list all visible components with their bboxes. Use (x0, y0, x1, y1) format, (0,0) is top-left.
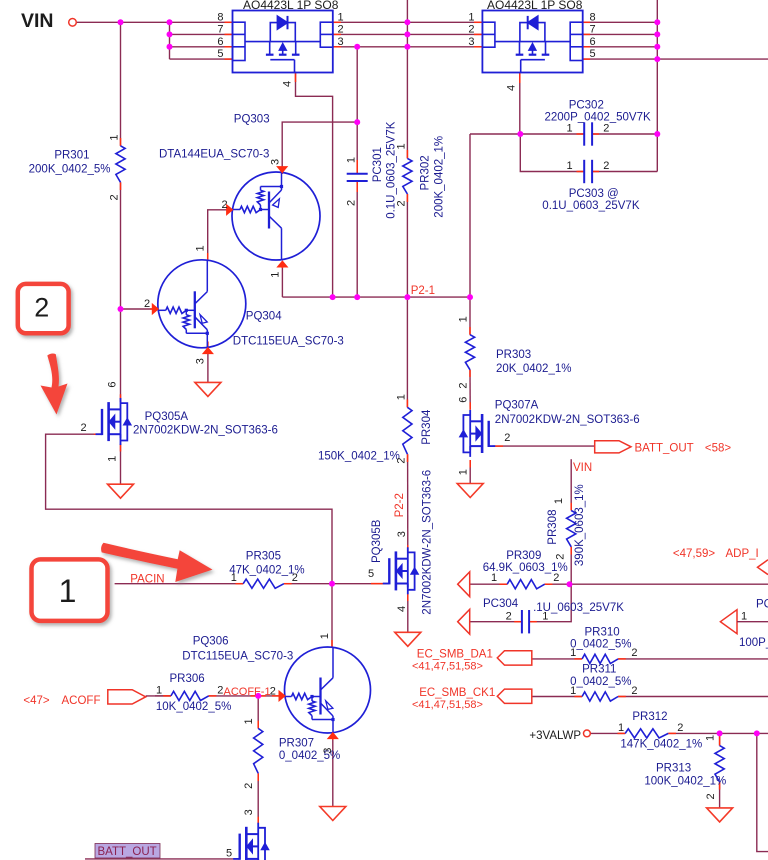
svg-text:PR310: PR310 (585, 627, 620, 639)
svg-text:BATT_OUT: BATT_OUT (635, 442, 694, 454)
svg-text:1: 1 (705, 735, 717, 741)
svg-text:1: 1 (59, 573, 77, 609)
svg-text:3: 3 (322, 748, 334, 754)
svg-text:1: 1 (618, 722, 624, 734)
svg-text:DTA144EUA_SC70-3: DTA144EUA_SC70-3 (159, 149, 269, 161)
svg-text:PQ306: PQ306 (193, 636, 229, 648)
svg-text:1: 1 (231, 572, 237, 584)
svg-text:PR308: PR308 (547, 510, 559, 545)
svg-text:200K_0402_5%: 200K_0402_5% (29, 164, 111, 176)
svg-text:6: 6 (458, 397, 470, 403)
svg-text:DTC115EUA_SC70-3: DTC115EUA_SC70-3 (182, 651, 293, 663)
svg-text:2: 2 (144, 298, 150, 310)
svg-text:2200P_0402_50V7K: 2200P_0402_50V7K (545, 112, 651, 124)
svg-text:1: 1 (109, 134, 121, 140)
svg-text:150K_0402_1%: 150K_0402_1% (318, 451, 400, 463)
svg-text:8: 8 (590, 11, 596, 23)
svg-text:ADP_I: ADP_I (726, 548, 759, 560)
svg-text:2: 2 (109, 194, 121, 200)
svg-text:1: 1 (156, 684, 162, 696)
svg-text:<58>: <58> (705, 442, 732, 454)
svg-text:1: 1 (270, 272, 282, 278)
svg-text:6: 6 (107, 381, 119, 387)
svg-text:2N7002KDW-2N_SOT363-6: 2N7002KDW-2N_SOT363-6 (422, 470, 434, 615)
svg-text:P2-1: P2-1 (411, 285, 435, 297)
svg-text:2: 2 (468, 24, 474, 36)
svg-text:5: 5 (217, 48, 223, 60)
svg-text:1: 1 (319, 633, 331, 639)
svg-text:2: 2 (346, 200, 358, 206)
svg-text:1: 1 (346, 157, 358, 163)
svg-text:2: 2 (222, 199, 228, 211)
svg-text:ACOFF-1: ACOFF-1 (224, 686, 271, 698)
svg-text:ACOFF: ACOFF (62, 695, 101, 707)
svg-text:4: 4 (506, 85, 518, 91)
svg-text:PR303: PR303 (496, 349, 531, 361)
svg-text:3: 3 (338, 36, 344, 48)
svg-text:2N7002KDW-2N_SOT363-6: 2N7002KDW-2N_SOT363-6 (495, 414, 640, 426)
svg-text:2: 2 (396, 457, 408, 463)
svg-text:3: 3 (396, 531, 408, 537)
svg-text:EC_SMB_DA1: EC_SMB_DA1 (417, 648, 493, 660)
svg-text:1: 1 (567, 122, 573, 134)
svg-text:1: 1 (396, 143, 408, 149)
svg-text:1: 1 (491, 572, 497, 584)
svg-text:EC_SMB_CK1: EC_SMB_CK1 (419, 687, 495, 699)
svg-text:1: 1 (458, 469, 470, 475)
svg-text:2: 2 (677, 722, 683, 734)
svg-text:4: 4 (396, 606, 408, 612)
svg-text:<47>: <47> (23, 695, 50, 707)
svg-text:2: 2 (338, 24, 344, 36)
svg-text:7: 7 (590, 24, 596, 36)
svg-text:2: 2 (396, 200, 408, 206)
svg-text:2N7002KDW-2N_SOT363-6: 2N7002KDW-2N_SOT363-6 (133, 425, 278, 437)
svg-text:0.1U_0603_25V7K: 0.1U_0603_25V7K (542, 200, 640, 212)
svg-text:8: 8 (217, 11, 223, 23)
svg-text:2: 2 (504, 432, 510, 444)
svg-text:BATT_OUT: BATT_OUT (98, 846, 157, 858)
svg-text:2: 2 (603, 122, 609, 134)
svg-text:PC303 @: PC303 @ (569, 188, 619, 200)
svg-text:PACIN: PACIN (130, 573, 164, 585)
svg-text:1: 1 (396, 394, 408, 400)
svg-text:0_0402_5%: 0_0402_5% (570, 639, 631, 651)
svg-text:PR304: PR304 (421, 409, 433, 445)
svg-text:1: 1 (458, 316, 470, 322)
svg-text:147K_0402_1%: 147K_0402_1% (620, 739, 702, 751)
svg-text:PR302: PR302 (420, 155, 432, 190)
svg-text:100K_0402_1%: 100K_0402_1% (644, 776, 726, 788)
svg-text:1: 1 (338, 11, 344, 23)
svg-text:5: 5 (590, 48, 596, 60)
svg-text:2: 2 (270, 685, 276, 697)
svg-text:2: 2 (243, 783, 255, 789)
svg-text:1: 1 (107, 456, 119, 462)
svg-text:PR305: PR305 (246, 551, 281, 563)
svg-text:2: 2 (506, 610, 512, 622)
svg-text:1: 1 (570, 685, 576, 697)
svg-text:2: 2 (458, 382, 470, 388)
svg-text:1: 1 (195, 245, 207, 251)
svg-text:<41,47,51,58>: <41,47,51,58> (412, 660, 483, 672)
svg-text:1: 1 (567, 160, 573, 172)
svg-text:PQ304: PQ304 (246, 311, 282, 323)
svg-text:2: 2 (292, 572, 298, 584)
svg-text:AO4423L 1P SO8: AO4423L 1P SO8 (487, 0, 583, 12)
svg-text:1: 1 (553, 498, 565, 504)
svg-text:2: 2 (705, 793, 717, 799)
svg-text:PR313: PR313 (656, 763, 691, 775)
svg-text:PR306: PR306 (170, 673, 205, 685)
svg-text:PR301: PR301 (54, 150, 89, 162)
svg-text:6: 6 (590, 36, 596, 48)
svg-text:2: 2 (631, 647, 637, 659)
svg-text:PC304: PC304 (483, 598, 519, 610)
svg-text:2: 2 (81, 422, 87, 434)
svg-text:2: 2 (34, 293, 49, 323)
svg-text:PC301: PC301 (372, 147, 384, 182)
svg-text:3: 3 (468, 36, 474, 48)
svg-text:1: 1 (741, 610, 747, 622)
svg-text:3: 3 (195, 358, 207, 364)
svg-text:6: 6 (217, 36, 223, 48)
svg-text:PQ305A: PQ305A (145, 411, 189, 423)
svg-text:PQ307A: PQ307A (495, 400, 539, 412)
svg-text:3: 3 (243, 809, 255, 815)
svg-text:7: 7 (217, 24, 223, 36)
svg-text:PC3: PC3 (756, 599, 768, 611)
svg-text:<41,47,51,58>: <41,47,51,58> (412, 699, 483, 711)
svg-text:PQ303: PQ303 (234, 114, 270, 126)
svg-text:1: 1 (570, 647, 576, 659)
svg-text:5: 5 (226, 847, 232, 859)
svg-text:PR312: PR312 (632, 711, 667, 723)
svg-text:2: 2 (217, 684, 223, 696)
svg-text:VIN: VIN (21, 10, 54, 32)
svg-text:10K_0402_5%: 10K_0402_5% (156, 701, 231, 713)
svg-text:2: 2 (555, 554, 567, 560)
svg-text:390K_0603_1%: 390K_0603_1% (574, 484, 586, 566)
svg-text:3: 3 (270, 159, 282, 165)
svg-text:PR309: PR309 (506, 550, 541, 562)
svg-text:1: 1 (542, 610, 548, 622)
svg-text:PR307: PR307 (279, 738, 314, 750)
svg-text:20K_0402_1%: 20K_0402_1% (496, 363, 571, 375)
svg-text:1: 1 (243, 718, 255, 724)
svg-text:5: 5 (368, 568, 374, 580)
svg-text:P2-2: P2-2 (394, 493, 406, 517)
svg-text:PR311: PR311 (582, 664, 616, 676)
svg-text:+3VALWP: +3VALWP (529, 730, 581, 742)
svg-text:2: 2 (553, 572, 559, 584)
svg-text:VIN: VIN (573, 462, 592, 474)
svg-text:0_0402_5%: 0_0402_5% (570, 676, 631, 688)
svg-text:AO4423L 1P SO8: AO4423L 1P SO8 (243, 0, 339, 12)
svg-text:PC302: PC302 (569, 100, 604, 112)
svg-text:200K_0402_1%: 200K_0402_1% (434, 136, 446, 218)
svg-text:PQ305B: PQ305B (371, 519, 383, 563)
svg-text:2: 2 (631, 685, 637, 697)
svg-text:DTC115EUA_SC70-3: DTC115EUA_SC70-3 (233, 336, 344, 348)
svg-text:100P_0: 100P_0 (739, 637, 768, 649)
svg-text:4: 4 (282, 81, 294, 87)
svg-text:1: 1 (468, 11, 474, 23)
svg-text:2: 2 (603, 160, 609, 172)
svg-text:<47,59>: <47,59> (673, 548, 715, 560)
